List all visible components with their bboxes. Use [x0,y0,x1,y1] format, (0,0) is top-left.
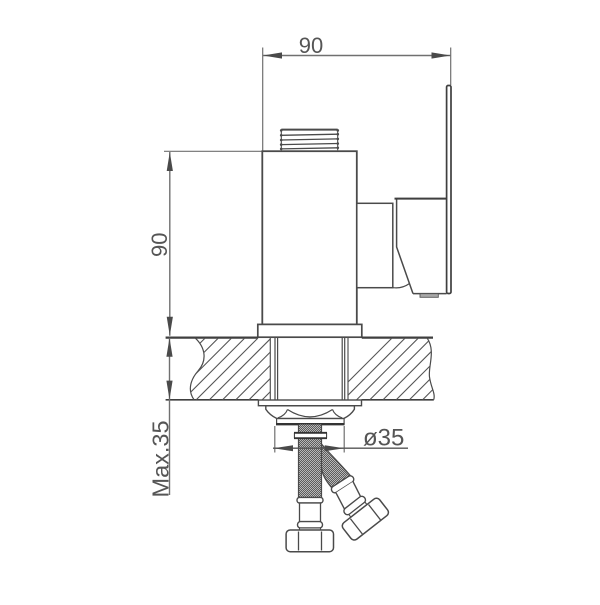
svg-text:90: 90 [299,33,323,58]
svg-text:Max.35: Max.35 [148,420,174,497]
svg-text:90: 90 [147,233,172,257]
svg-text:ø35: ø35 [363,425,404,452]
